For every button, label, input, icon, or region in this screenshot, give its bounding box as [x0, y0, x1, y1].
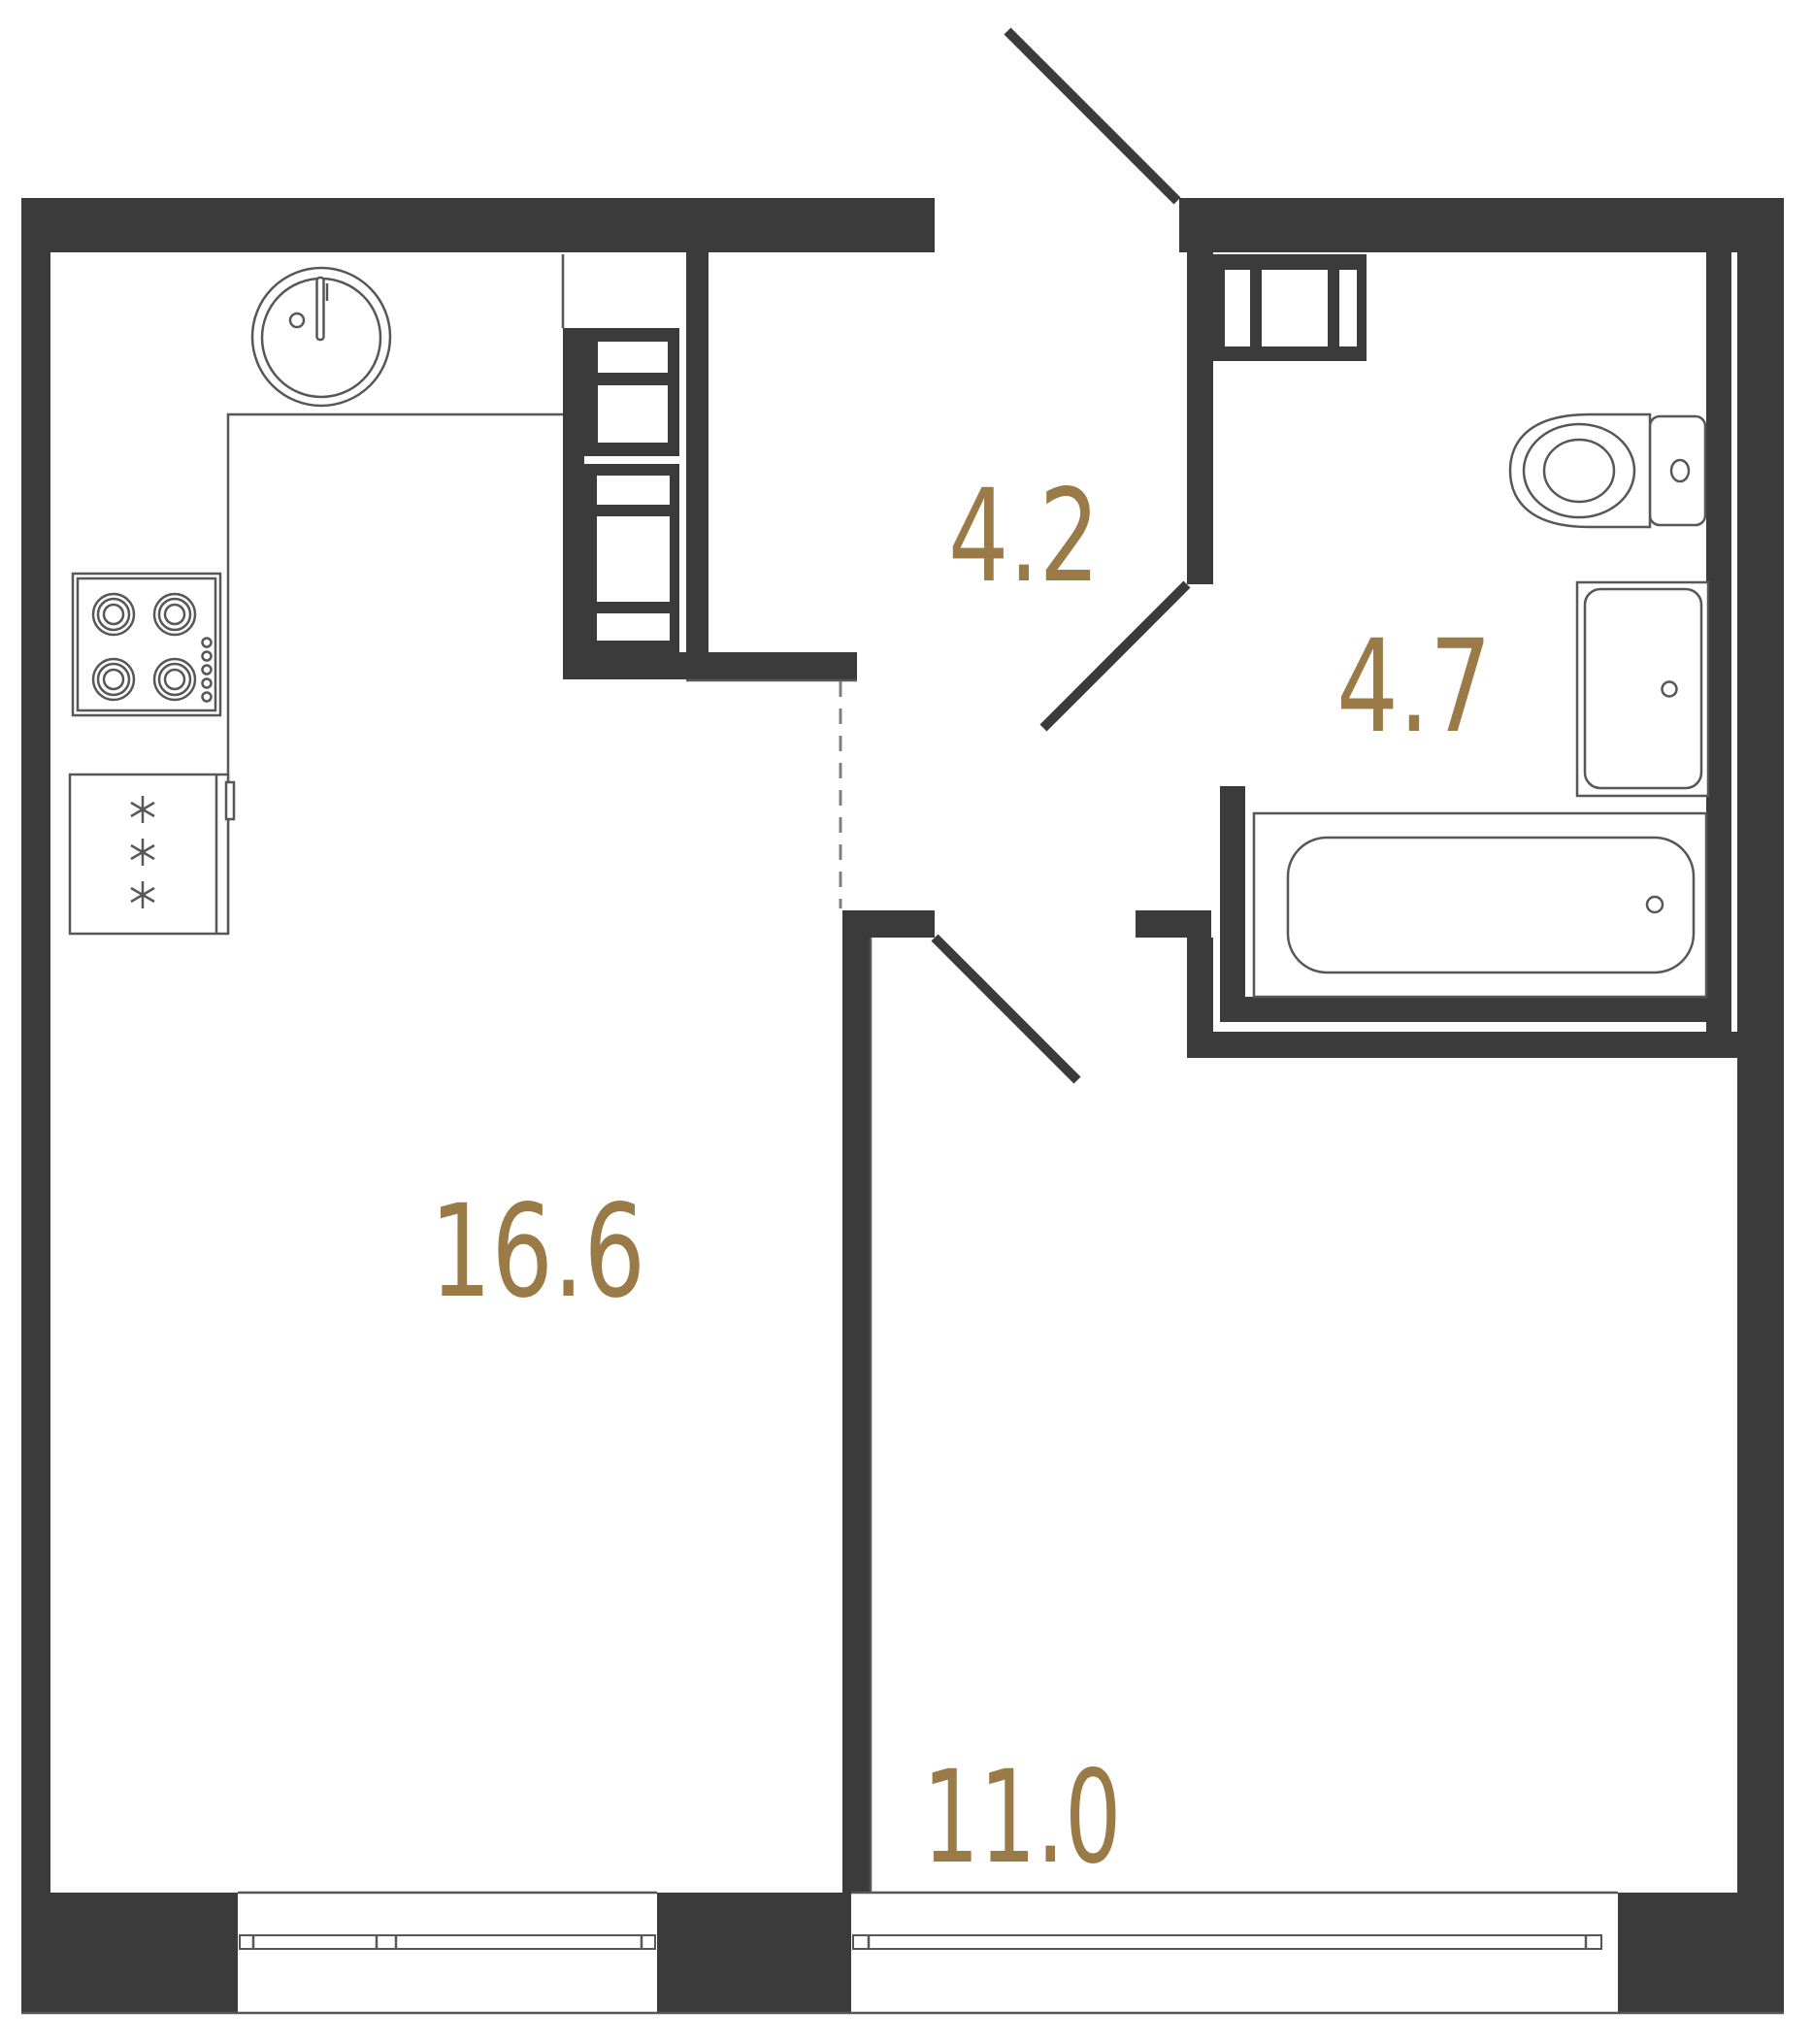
wardrobe-upper-shelf-1	[598, 342, 668, 373]
cooktop	[73, 574, 220, 715]
storage-cabinet-cell-1	[1225, 270, 1250, 346]
wardrobe-gap	[679, 328, 686, 652]
storage-cabinet-cell-2	[1262, 270, 1328, 346]
wall-kitchen-hall-partition	[686, 252, 708, 679]
wall-bathroom-right-lining	[1706, 250, 1731, 1058]
cooktop-panel	[78, 578, 215, 710]
wardrobe-side-panel	[563, 328, 584, 652]
wardrobe-lower-shelf-1	[597, 476, 670, 505]
toilet-bowl	[1544, 440, 1614, 502]
wall-bathroom-bottom	[1245, 997, 1706, 1022]
wall-bathroom-left-lower	[1220, 786, 1245, 1022]
bathtub-basin	[1288, 838, 1694, 973]
kitchen-sink	[252, 268, 390, 406]
toilet-flush-button	[1671, 460, 1689, 481]
wall-top-right	[1179, 198, 1784, 252]
wall-right-outer	[1737, 198, 1784, 2014]
area-label-hallway: 4.2	[948, 462, 1100, 611]
bedroom-door-swing	[935, 938, 1077, 1080]
entry-door-swing	[1007, 31, 1177, 201]
wall-room-partition	[842, 910, 870, 1893]
wall-bedroom-door-jamb-right	[1136, 910, 1211, 938]
sink-drain	[290, 313, 304, 327]
bathtub-drain	[1647, 897, 1663, 912]
wardrobe-lower-shelf-2	[597, 516, 670, 602]
wardrobe-lower-shelf-3	[597, 613, 670, 641]
construction-lines	[21, 254, 1784, 2013]
faucet-icon	[317, 278, 324, 340]
wall-bottom-pier-right	[1618, 1893, 1784, 2014]
refrigerator-handle	[226, 782, 234, 819]
toilet	[1510, 414, 1705, 527]
refrigerator	[70, 775, 234, 934]
area-label-bedroom: 11.0	[923, 1743, 1122, 1893]
bathtub	[1254, 813, 1706, 997]
area-label-living-room: 16.6	[430, 1177, 645, 1327]
washbasin-bowl	[1585, 589, 1701, 788]
washbasin	[1577, 582, 1708, 796]
wall-bedroom-top	[1213, 1032, 1737, 1058]
wall-top-left	[21, 198, 935, 252]
bedroom-window	[851, 1893, 1618, 1949]
window-glazing	[240, 1935, 655, 1949]
washbasin-faucet	[1663, 682, 1677, 697]
refrigerator-body	[70, 775, 228, 934]
wall-hall-stub	[563, 652, 857, 679]
floor-plan: 16.6 4.2 4.7 11.0	[0, 0, 1812, 2044]
wardrobe-upper-shelf-2	[598, 385, 668, 443]
storage-cabinet-cell-3	[1339, 270, 1357, 346]
wall-bathroom-left-pier	[1187, 250, 1213, 584]
window-glazing	[853, 1935, 1601, 1949]
wall-left-outer	[21, 198, 50, 2014]
wall-bottom-pier-middle	[657, 1893, 851, 2014]
wall-bottom-pier-left	[21, 1893, 238, 2014]
kitchen-counter-line	[228, 414, 563, 934]
area-label-bathroom: 4.7	[1336, 612, 1492, 762]
floor-plan-page: 16.6 4.2 4.7 11.0	[0, 0, 1812, 2044]
wall-bedroom-corner	[1187, 938, 1213, 1058]
living-room-window	[238, 1893, 657, 1949]
